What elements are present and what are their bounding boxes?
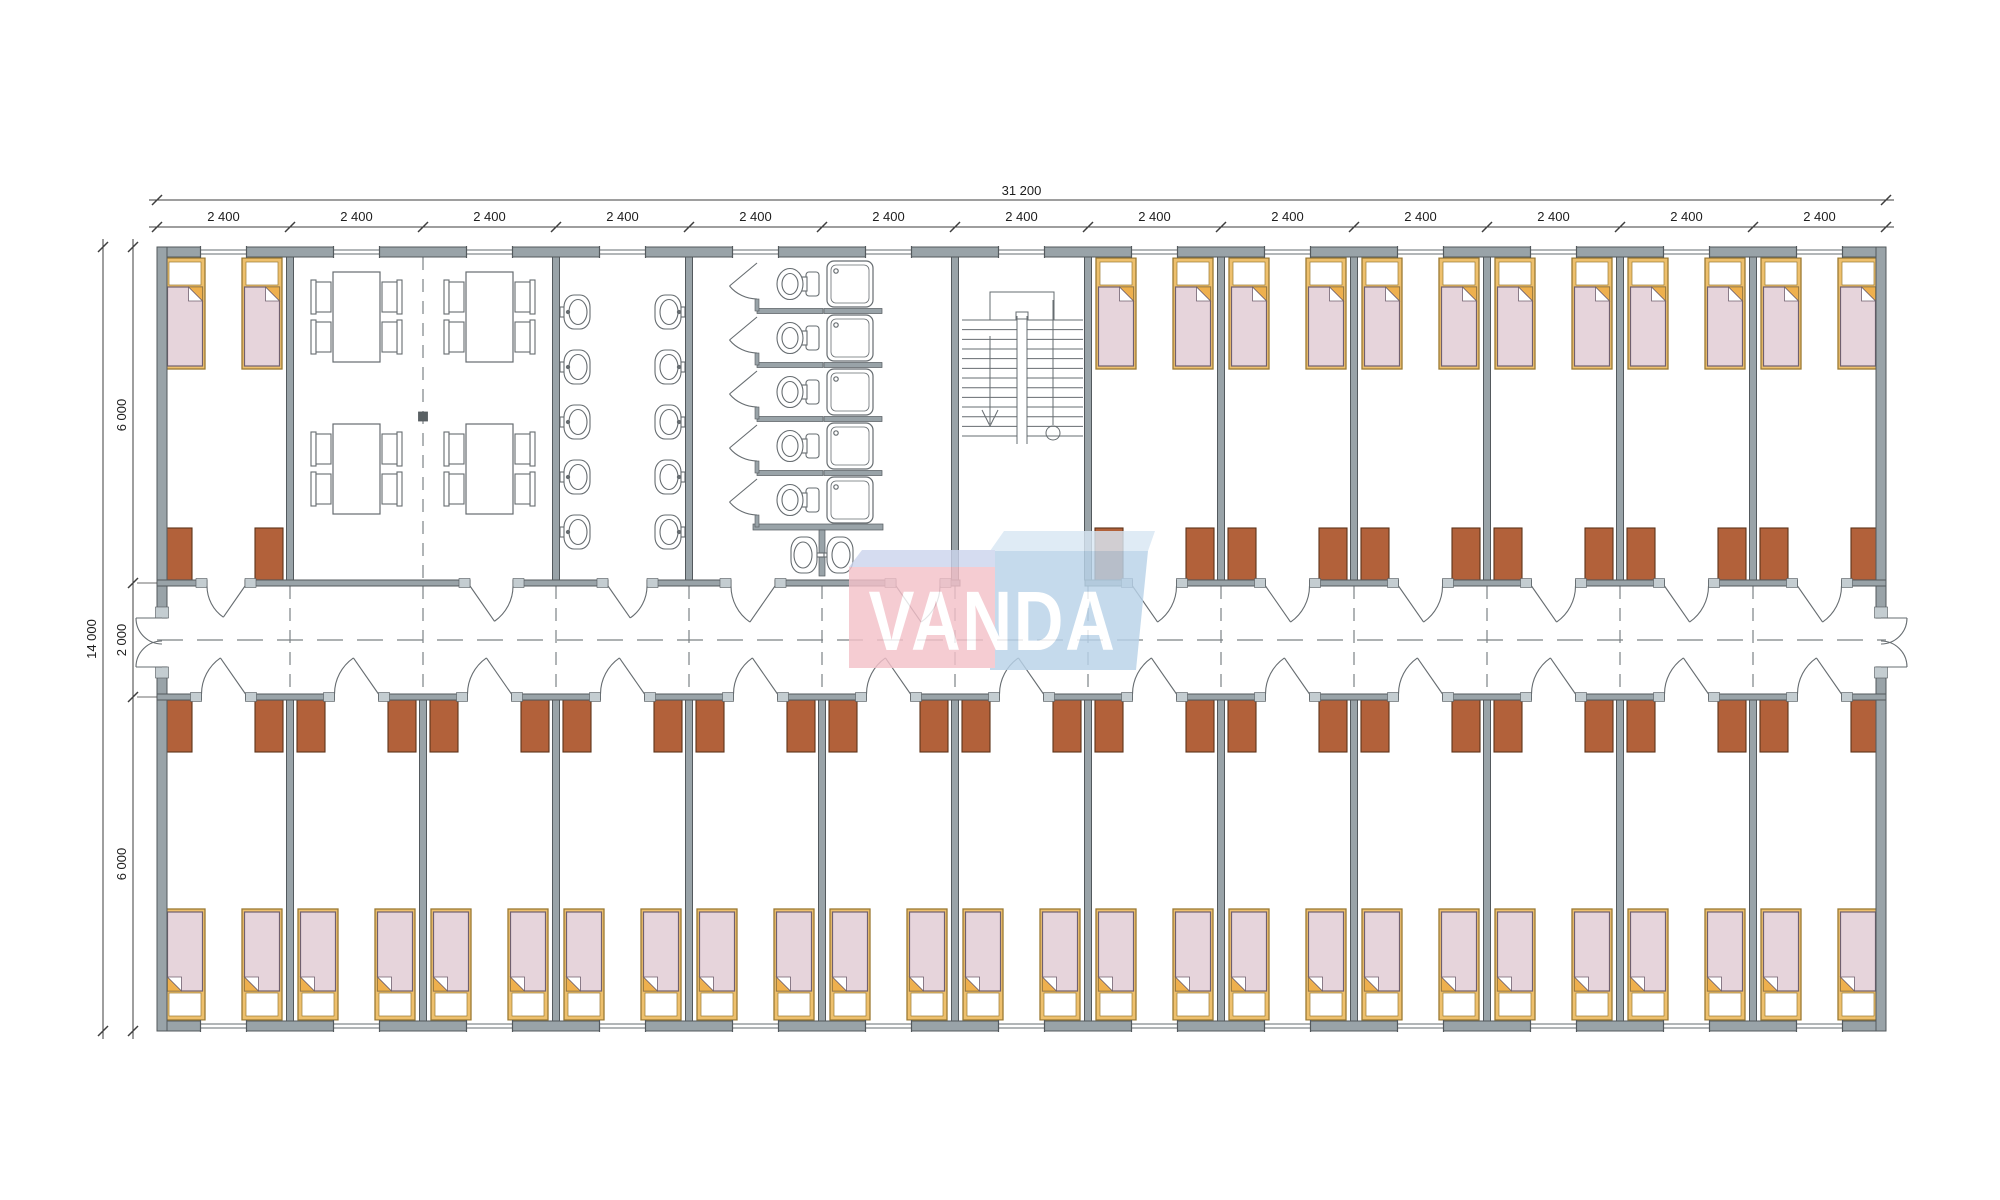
corridor-wall-bottom xyxy=(246,694,335,700)
chair-back xyxy=(397,320,402,354)
chair-seat xyxy=(449,434,464,464)
dimension-label: 2 400 xyxy=(1803,209,1836,224)
window xyxy=(201,1020,247,1032)
bed xyxy=(1439,909,1479,1020)
window xyxy=(733,246,779,258)
corridor-wall-top xyxy=(1177,580,1266,586)
bed-pillow xyxy=(1499,262,1531,285)
shower-tray xyxy=(827,423,873,469)
door-jamb-cap xyxy=(989,693,1000,702)
bed xyxy=(1229,258,1269,369)
toilet-icon xyxy=(777,269,819,300)
chair-seat xyxy=(316,322,331,352)
door-jamb-cap xyxy=(1709,693,1720,702)
wc-stall-partition xyxy=(757,471,823,476)
chair xyxy=(382,432,402,466)
wardrobe xyxy=(255,700,283,752)
corridor-wall-bottom xyxy=(1310,694,1399,700)
bed xyxy=(1495,909,1535,1020)
partition-wall-bottom-band xyxy=(1617,700,1624,1021)
door-jamb-cap xyxy=(1521,579,1532,588)
window-opening xyxy=(467,247,513,258)
bed xyxy=(1628,258,1668,369)
door-jamb-cap xyxy=(911,693,922,702)
dimension-label: 31 200 xyxy=(1002,183,1042,198)
basin-bowl xyxy=(569,410,587,435)
chair xyxy=(382,320,402,354)
partition-wall-top-band xyxy=(952,257,959,580)
door-jamb-cap xyxy=(597,579,608,588)
corridor-wall-bottom xyxy=(645,694,734,700)
partition-wall-top-band xyxy=(1351,257,1358,580)
chair xyxy=(444,472,464,506)
window-opening xyxy=(201,247,247,258)
window-opening xyxy=(1664,247,1710,258)
stair-newel xyxy=(1016,312,1028,319)
chair-back xyxy=(311,280,316,314)
exterior-wall-left xyxy=(157,667,167,1031)
bed-pillow xyxy=(1233,993,1265,1016)
shower-drain xyxy=(834,485,838,489)
bed-pillow xyxy=(169,262,201,285)
door-jamb-cap xyxy=(1255,693,1266,702)
corridor-wall-top xyxy=(1443,580,1532,586)
shower-drain xyxy=(834,377,838,381)
bed-pillow xyxy=(1177,262,1209,285)
door-jamb-cap xyxy=(1177,693,1188,702)
chair-seat xyxy=(316,474,331,504)
basin-bowl xyxy=(660,520,678,545)
dimension-label: 2 400 xyxy=(739,209,772,224)
floorplan-page: 31 2002 4002 4002 4002 4002 4002 4002 40… xyxy=(0,0,2000,1200)
dimension-label: 2 400 xyxy=(1670,209,1703,224)
chair-back xyxy=(397,432,402,466)
bed-pillow xyxy=(834,993,866,1016)
wardrobe xyxy=(654,700,682,752)
partition-wall-top-band xyxy=(1750,257,1757,580)
shower-drain xyxy=(834,269,838,273)
wardrobe xyxy=(1228,528,1256,580)
toilet-icon xyxy=(777,431,819,462)
shower-tray xyxy=(827,477,873,523)
vanda-logo: VANDA xyxy=(849,531,1155,670)
bed-pillow xyxy=(1100,262,1132,285)
window xyxy=(1797,246,1843,258)
door-jamb-cap xyxy=(512,693,523,702)
bed xyxy=(431,909,471,1020)
door-jamb-cap xyxy=(1443,693,1454,702)
wardrobe xyxy=(1851,700,1879,752)
bed-pillow xyxy=(1709,993,1741,1016)
partition-wall-top-band xyxy=(1617,257,1624,580)
bed-pillow xyxy=(911,993,943,1016)
bed xyxy=(1306,909,1346,1020)
bed xyxy=(1096,258,1136,369)
door-jamb-cap xyxy=(156,607,169,618)
window xyxy=(1265,1020,1311,1032)
chair xyxy=(311,432,331,466)
window xyxy=(733,1020,779,1032)
bed-pillow xyxy=(1443,262,1475,285)
window xyxy=(866,246,912,258)
bed xyxy=(1362,258,1402,369)
window-opening xyxy=(467,1021,513,1032)
partition-wall-bottom-band xyxy=(553,700,560,1021)
basin-drain xyxy=(677,420,680,423)
bed xyxy=(1229,909,1269,1020)
window-opening xyxy=(600,1021,646,1032)
door-jamb-cap xyxy=(191,693,202,702)
partition-wall-top-band xyxy=(553,257,560,580)
bed xyxy=(1362,909,1402,1020)
chair xyxy=(515,432,535,466)
window-opening xyxy=(1797,247,1843,258)
window-opening xyxy=(866,247,912,258)
window-opening xyxy=(1531,1021,1577,1032)
chair-seat xyxy=(449,322,464,352)
dimension-label: 14 000 xyxy=(84,619,99,659)
floor-plan-drawing: 31 2002 4002 4002 4002 4002 4002 4002 40… xyxy=(0,0,2000,1200)
door-jamb-cap xyxy=(1388,693,1399,702)
bed-pillow xyxy=(1632,262,1664,285)
bed xyxy=(641,909,681,1020)
door-jamb-cap xyxy=(720,579,731,588)
bed xyxy=(1705,258,1745,369)
chair-seat xyxy=(449,282,464,312)
dimension-label: 2 400 xyxy=(1271,209,1304,224)
bed-pillow xyxy=(1443,993,1475,1016)
chair-seat xyxy=(515,474,530,504)
corridor-wall-bottom xyxy=(1044,694,1133,700)
door-jamb-cap xyxy=(778,693,789,702)
window-opening xyxy=(866,1021,912,1032)
bed-pillow xyxy=(1576,262,1608,285)
wardrobe xyxy=(563,700,591,752)
corridor-wall-top xyxy=(1576,580,1665,586)
wardrobe xyxy=(1851,528,1879,580)
chair-back xyxy=(397,472,402,506)
dimension-label: 2 400 xyxy=(473,209,506,224)
chair-back xyxy=(444,432,449,466)
basin-drain xyxy=(566,530,569,533)
partition-wall-bottom-band xyxy=(952,700,959,1021)
logo-blue-top-face xyxy=(990,531,1155,551)
door-jamb-cap xyxy=(1842,579,1853,588)
door-jamb-cap xyxy=(379,693,390,702)
door-jamb-cap xyxy=(1177,579,1188,588)
corridor-wall-bottom xyxy=(911,694,1000,700)
stall-front-stub xyxy=(755,353,759,365)
door-jamb-cap xyxy=(459,579,470,588)
bed-pillow xyxy=(1310,262,1342,285)
window xyxy=(600,1020,646,1032)
bed-pillow xyxy=(1310,993,1342,1016)
bed xyxy=(1495,258,1535,369)
window-opening xyxy=(999,1021,1045,1032)
dimension-label: 2 400 xyxy=(1537,209,1570,224)
toilet-tank xyxy=(806,272,819,296)
chair-back xyxy=(530,432,535,466)
bed xyxy=(1439,258,1479,369)
chair-seat xyxy=(515,282,530,312)
window xyxy=(467,246,513,258)
bed-pillow xyxy=(435,993,467,1016)
shower-partition xyxy=(824,363,882,368)
wardrobe xyxy=(696,700,724,752)
bed-pillow xyxy=(778,993,810,1016)
window-opening xyxy=(201,1021,247,1032)
window xyxy=(334,1020,380,1032)
partition-wall-bottom-band xyxy=(686,700,693,1021)
basin-bowl xyxy=(660,410,678,435)
basin-bowl xyxy=(569,300,587,325)
chair xyxy=(382,280,402,314)
bed-pillow xyxy=(1233,262,1265,285)
window xyxy=(866,1020,912,1032)
shower-drain xyxy=(834,323,838,327)
chair-seat xyxy=(316,434,331,464)
toilet-bowl-inner xyxy=(782,274,798,295)
wardrobe xyxy=(1319,700,1347,752)
chair-back xyxy=(444,472,449,506)
structural-column xyxy=(419,412,428,421)
window xyxy=(1398,1020,1444,1032)
dining-table xyxy=(333,272,380,362)
window-opening xyxy=(600,247,646,258)
basin-bowl xyxy=(832,542,850,568)
door-jamb-cap xyxy=(457,693,468,702)
wardrobe xyxy=(1494,528,1522,580)
chair-back xyxy=(530,320,535,354)
dimension-label: 2 400 xyxy=(1005,209,1038,224)
door-jamb-cap xyxy=(1310,579,1321,588)
bed-pillow xyxy=(1366,262,1398,285)
wardrobe xyxy=(1186,528,1214,580)
bed-pillow xyxy=(1632,993,1664,1016)
shower-partition xyxy=(824,309,882,314)
wardrobe xyxy=(962,700,990,752)
chair-seat xyxy=(382,282,397,312)
dimension-label: 2 400 xyxy=(1138,209,1171,224)
bed xyxy=(165,909,205,1020)
door-jamb-cap xyxy=(1875,607,1888,618)
wardrobe xyxy=(1095,700,1123,752)
door-jamb-cap xyxy=(1576,693,1587,702)
bed-pillow xyxy=(379,993,411,1016)
stall-front-stub xyxy=(755,407,759,419)
chair-back xyxy=(444,320,449,354)
basin-drain xyxy=(566,420,569,423)
chair xyxy=(311,472,331,506)
stall-front-stub xyxy=(755,299,759,311)
toilet-icon xyxy=(777,323,819,354)
door-jamb-cap xyxy=(1654,693,1665,702)
chair xyxy=(444,280,464,314)
door-jamb-cap xyxy=(645,693,656,702)
dimension-label: 2 000 xyxy=(114,624,129,657)
chair-back xyxy=(530,472,535,506)
window-opening xyxy=(334,247,380,258)
bed xyxy=(242,258,282,369)
chair-seat xyxy=(382,474,397,504)
dimension-label: 6 000 xyxy=(114,399,129,432)
wardrobe xyxy=(1585,528,1613,580)
bed-pillow xyxy=(1366,993,1398,1016)
basin-bowl xyxy=(660,300,678,325)
partition-wall-top-band xyxy=(287,257,294,580)
door-jamb-cap xyxy=(246,693,257,702)
chair xyxy=(444,432,464,466)
bed-pillow xyxy=(1499,993,1531,1016)
chair-seat xyxy=(449,474,464,504)
toilet-tank xyxy=(806,326,819,350)
wardrobe xyxy=(521,700,549,752)
toilet-tank xyxy=(806,488,819,512)
window xyxy=(1664,1020,1710,1032)
bed xyxy=(1096,909,1136,1020)
bed xyxy=(1628,909,1668,1020)
window xyxy=(1797,1020,1843,1032)
stall-front-stub xyxy=(755,461,759,473)
stall-front-stub xyxy=(755,515,759,527)
window xyxy=(1531,1020,1577,1032)
basin-drain xyxy=(677,310,680,313)
wardrobe xyxy=(1718,700,1746,752)
bed-pillow xyxy=(967,993,999,1016)
bed-pillow xyxy=(302,993,334,1016)
corridor-wall-top xyxy=(1709,580,1798,586)
chair xyxy=(515,280,535,314)
chair xyxy=(382,472,402,506)
bed xyxy=(1173,258,1213,369)
basin-drain xyxy=(566,365,569,368)
chair-seat xyxy=(515,322,530,352)
corridor-wall-bottom xyxy=(1576,694,1665,700)
window-opening xyxy=(1398,247,1444,258)
chair-seat xyxy=(316,282,331,312)
bed xyxy=(1838,258,1878,369)
window-opening xyxy=(733,1021,779,1032)
dining-table xyxy=(333,424,380,514)
wardrobe xyxy=(164,528,192,580)
window-opening xyxy=(1797,1021,1843,1032)
basin-drain xyxy=(677,475,680,478)
window xyxy=(1132,1020,1178,1032)
wardrobe xyxy=(1361,528,1389,580)
wardrobe xyxy=(1627,528,1655,580)
bed-pillow xyxy=(645,993,677,1016)
shower-tray xyxy=(827,261,873,307)
bed xyxy=(298,909,338,1020)
door-jamb-cap xyxy=(196,579,207,588)
corridor-wall-bottom xyxy=(1709,694,1798,700)
door-jamb-cap xyxy=(156,667,169,678)
chair-back xyxy=(444,280,449,314)
wardrobe xyxy=(1494,700,1522,752)
basin-drain xyxy=(677,365,680,368)
bed-pillow xyxy=(1044,993,1076,1016)
dining-table xyxy=(466,424,513,514)
bed-pillow xyxy=(568,993,600,1016)
bed-pillow xyxy=(1100,993,1132,1016)
window xyxy=(1265,246,1311,258)
corridor-wall-bottom xyxy=(379,694,468,700)
window xyxy=(334,246,380,258)
shower-tray xyxy=(827,369,873,415)
door-jamb-cap xyxy=(590,693,601,702)
bed xyxy=(242,909,282,1020)
partition-wall-bottom-band xyxy=(1750,700,1757,1021)
window-opening xyxy=(1265,1021,1311,1032)
shower-partition xyxy=(824,471,882,476)
wardrobe xyxy=(255,528,283,580)
chair-back xyxy=(397,280,402,314)
dimension-label: 2 400 xyxy=(606,209,639,224)
door-jamb-cap xyxy=(1388,579,1399,588)
toilet-bowl-inner xyxy=(782,490,798,511)
bed-pillow xyxy=(246,993,278,1016)
chair xyxy=(444,320,464,354)
door-jamb-cap xyxy=(856,693,867,702)
toilet-bowl-inner xyxy=(782,436,798,457)
partition-wall-bottom-band xyxy=(1484,700,1491,1021)
bed xyxy=(1040,909,1080,1020)
bed-pillow xyxy=(512,993,544,1016)
wardrobe xyxy=(1718,528,1746,580)
door-jamb-cap xyxy=(723,693,734,702)
bed-pillow xyxy=(1576,993,1608,1016)
bed-pillow xyxy=(1709,262,1741,285)
bed xyxy=(564,909,604,1020)
partition-wall-bottom-band xyxy=(819,700,826,1021)
window xyxy=(1132,246,1178,258)
window-opening xyxy=(1265,247,1311,258)
wardrobe xyxy=(829,700,857,752)
bed-pillow xyxy=(246,262,278,285)
window-opening xyxy=(733,247,779,258)
chair xyxy=(311,320,331,354)
wardrobe xyxy=(1361,700,1389,752)
door-jamb-cap xyxy=(245,579,256,588)
door-jamb-cap xyxy=(775,579,786,588)
wardrobe xyxy=(920,700,948,752)
wardrobe xyxy=(388,700,416,752)
wardrobe xyxy=(1228,700,1256,752)
dimension-label: 2 400 xyxy=(872,209,905,224)
partition-wall-bottom-band xyxy=(420,700,427,1021)
chair-seat xyxy=(382,434,397,464)
bed xyxy=(1572,258,1612,369)
bed-pillow xyxy=(1842,993,1874,1016)
window xyxy=(1398,246,1444,258)
basin-bowl xyxy=(569,520,587,545)
door-jamb-cap xyxy=(324,693,335,702)
chair-back xyxy=(311,472,316,506)
wardrobe xyxy=(1760,700,1788,752)
bed-pillow xyxy=(1765,262,1797,285)
door-jamb-cap xyxy=(1255,579,1266,588)
bed xyxy=(774,909,814,1020)
window xyxy=(467,1020,513,1032)
shower-partition xyxy=(824,417,882,422)
chair-back xyxy=(311,432,316,466)
bed xyxy=(165,258,205,369)
window-opening xyxy=(1398,1021,1444,1032)
dimension-label: 2 400 xyxy=(207,209,240,224)
door-jamb-cap xyxy=(647,579,658,588)
bed xyxy=(1705,909,1745,1020)
wardrobe xyxy=(1585,700,1613,752)
